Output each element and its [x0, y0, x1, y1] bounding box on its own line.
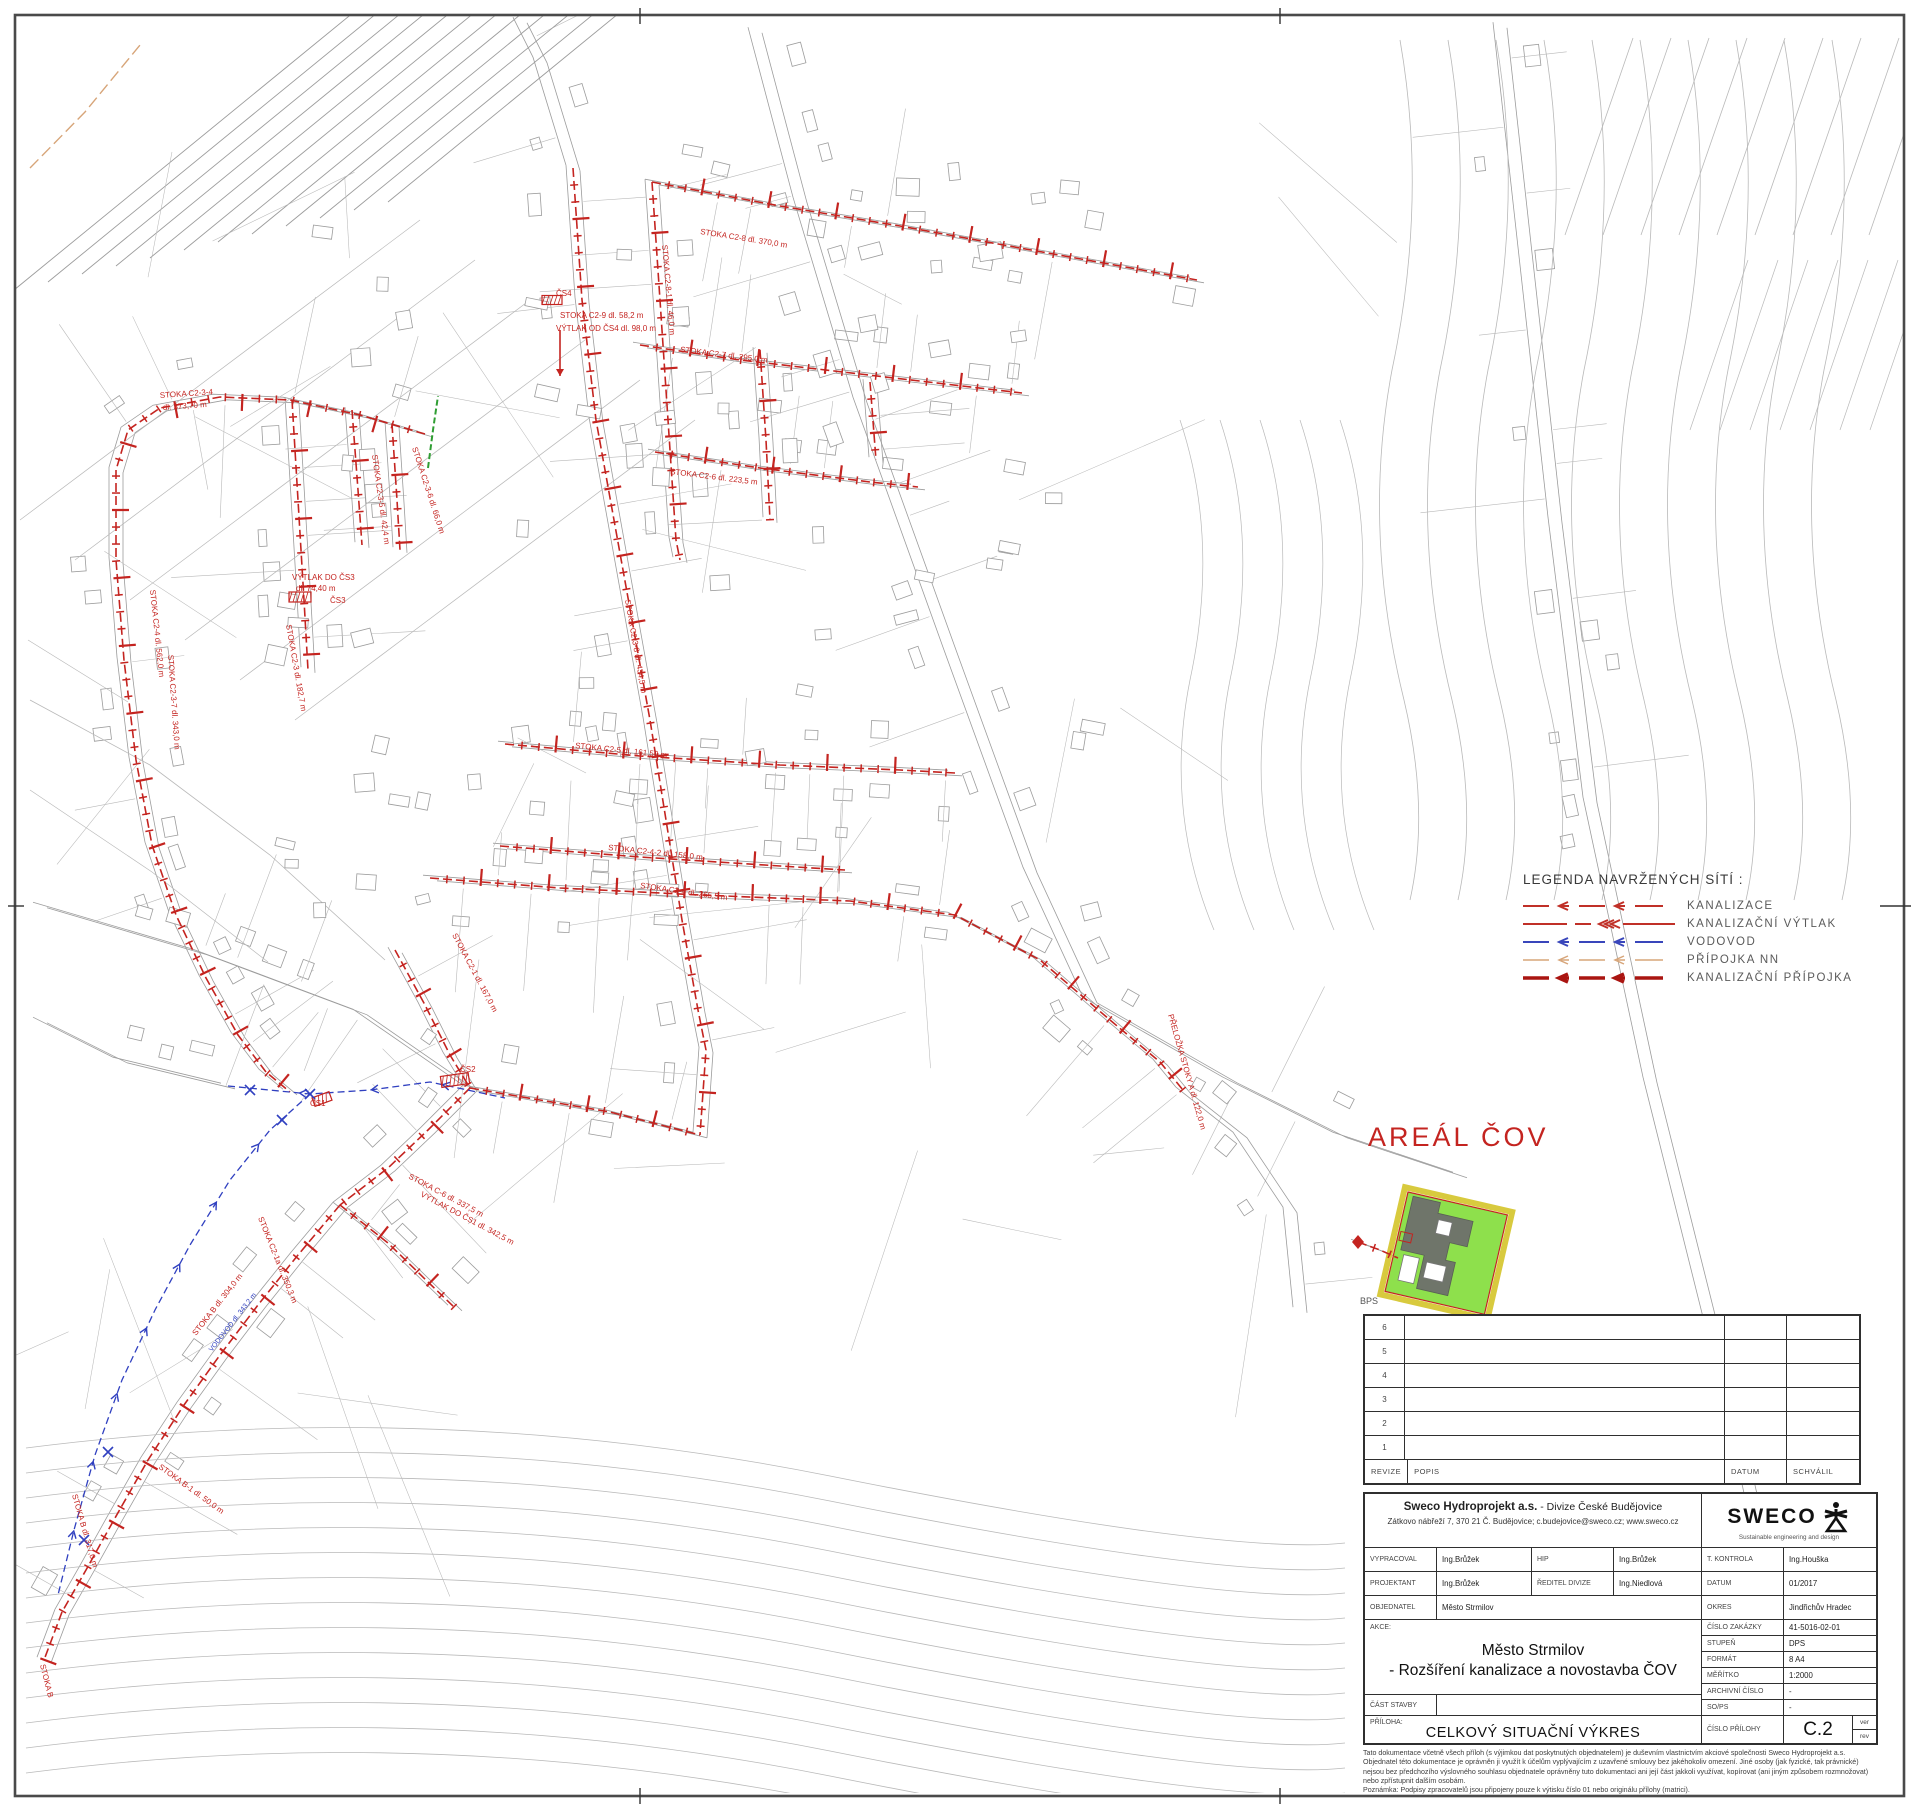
column-header: POPIS [1408, 1460, 1725, 1483]
drawing-number: C.2 [1784, 1716, 1852, 1743]
field-label: ČÍSLO PŘÍLOHY [1702, 1716, 1784, 1743]
revision-number: 2 [1365, 1412, 1405, 1435]
areal-cov-label: AREÁL ČOV [1368, 1121, 1549, 1152]
map-label: ČS2 [460, 1065, 476, 1074]
table-row: 2 [1365, 1412, 1859, 1436]
legend-item-pripojka-nn: PŘÍPOJKA NN [1523, 951, 1873, 969]
revision-number: 3 [1365, 1388, 1405, 1411]
column-header: REVIZE [1365, 1460, 1408, 1483]
drawing-title-cell: PŘÍLOHA: CELKOVÝ SITUAČNÍ VÝKRES [1365, 1716, 1701, 1743]
column-header: DATUM [1725, 1460, 1787, 1483]
map-label: STOKA C2-4 dl. 562,0 m [148, 589, 166, 678]
map-label: ČS3 [330, 596, 346, 605]
field-value: Ing.Niedlová [1614, 1572, 1701, 1595]
map-label: STOKA C2-3-7 dl. 343,0 m [166, 655, 182, 751]
disclaimer-line: Poznámka: Podpisy zpracovatelů jsou přip… [1363, 1786, 1878, 1795]
map-label: STOKA C2-9 dl. 58,2 m [560, 311, 644, 320]
kanalizacni-vytlak-line-icon [1523, 917, 1675, 931]
map-label: STOKA B dl. 317,0 m [70, 1493, 100, 1569]
legend-item-kanalizacni-pripojka: KANALIZAČNÍ PŘÍPOJKA [1523, 969, 1873, 987]
field-label: PROJEKTANT [1365, 1572, 1437, 1595]
field-label: OKRES [1702, 1596, 1784, 1619]
sweco-logo-icon [1821, 1501, 1851, 1533]
company-name: Sweco Hydroprojekt a.s. [1404, 1501, 1538, 1513]
revision-number: 5 [1365, 1340, 1405, 1363]
field-label: HIP [1532, 1548, 1614, 1571]
field-value: 01/2017 [1784, 1572, 1876, 1595]
field-label: AKCE: [1370, 1624, 1391, 1631]
legend-item-kanalizacni-vytlak: KANALIZAČNÍ VÝTLAK [1523, 915, 1873, 933]
project-title-line1: Město Strmilov [1365, 1642, 1701, 1660]
kanalizacni-pripojka-line-icon [1523, 971, 1675, 985]
field-label: ARCHIVNÍ ČÍSLO [1702, 1684, 1784, 1699]
field-label: STUPEŇ [1702, 1636, 1784, 1651]
map-label: VÝTLAK OD ČS4 dl. 98,0 m [556, 324, 656, 333]
field-value: Město Strmilov [1437, 1596, 1701, 1619]
field-label: DATUM [1702, 1572, 1784, 1595]
field-label: OBJEDNATEL [1365, 1596, 1437, 1619]
table-row: 1 [1365, 1436, 1859, 1460]
vodovod-line-icon [1523, 935, 1675, 949]
map-label: STOKA C2-4-2 dl. 158,0 m [608, 843, 704, 862]
field-value: - [1784, 1684, 1876, 1699]
table-row: 4 [1365, 1364, 1859, 1388]
field-label: ČÁST STAVBY [1365, 1695, 1437, 1715]
legend-title: LEGENDA NAVRŽENÝCH SÍTÍ : [1523, 872, 1873, 887]
company-address: Zátkovo nábřeží 7, 370 21 Č. Budějovice;… [1371, 1517, 1695, 1526]
field-label: ČÍSLO ZAKÁZKY [1702, 1620, 1784, 1635]
drawing-number-cell: ČÍSLO PŘÍLOHY C.2 ver rev [1702, 1716, 1876, 1743]
map-label: STOKA B-1 dl. 50,0 m [157, 1462, 226, 1516]
kanalizace-line-icon [1523, 899, 1675, 913]
map-label: ČS1 [310, 1099, 326, 1108]
column-header: SCHVÁLIL [1787, 1460, 1859, 1483]
field-value: - [1784, 1700, 1876, 1715]
map-label: ČS4 [556, 289, 572, 298]
project-title-line2: - Rozšíření kanalizace a novostavba ČOV [1365, 1662, 1701, 1680]
company-header: Sweco Hydroprojekt a.s. - Divize České B… [1365, 1494, 1702, 1547]
legend-item-kanalizace: KANALIZACE [1523, 897, 1873, 915]
field-label: MĚŘÍTKO [1702, 1668, 1784, 1683]
rev-label: rev [1853, 1730, 1876, 1743]
field-value: Ing.Brůžek [1614, 1548, 1701, 1571]
field-label: VYPRACOVAL [1365, 1548, 1437, 1571]
company-division: - Divize České Budějovice [1537, 1501, 1662, 1513]
disclaimer-line: Tato dokumentace včetně všech příloh (s … [1363, 1749, 1878, 1758]
title-block: Sweco Hydroprojekt a.s. - Divize České B… [1363, 1492, 1878, 1745]
legend-item-vodovod: VODOVOD [1523, 933, 1873, 951]
field-label: T. KONTROLA [1702, 1548, 1784, 1571]
field-value: 41-5016-02-01 [1784, 1620, 1876, 1635]
map-label: STOKA C2-8-1 dl. 46,0 m [660, 244, 677, 335]
revision-number: 1 [1365, 1436, 1405, 1459]
map-label: dl. 373,70 m [163, 400, 208, 412]
revision-number: 6 [1365, 1316, 1405, 1339]
field-label: SO/PS [1702, 1700, 1784, 1715]
table-row: 3 [1365, 1388, 1859, 1412]
map-label: VÝTLAK DO ČS1 dl. 342,5 m [419, 1190, 516, 1247]
field-label: PŘÍLOHA: [1370, 1719, 1403, 1726]
drawing-title: CELKOVÝ SITUAČNÍ VÝKRES [1365, 1716, 1701, 1743]
map-label: STOKA C2-1a dl. 350,3 m [256, 1215, 299, 1304]
pripojka-nn-line-icon [1523, 953, 1675, 967]
revision-table: 6 5 4 3 2 1 REVIZE POPIS DATUM SCHVÁLIL [1363, 1314, 1861, 1485]
map-label: PŘELOŽKA STOKY A dl. 122,0 m [1166, 1013, 1208, 1131]
areal-cov-siteplan [1380, 1187, 1512, 1319]
field-value: Ing.Brůžek [1437, 1548, 1532, 1571]
utility-networks [30, 45, 1398, 1664]
field-value: 1:2000 [1784, 1668, 1876, 1683]
field-label: FORMÁT [1702, 1652, 1784, 1667]
legend-item-label: KANALIZACE [1687, 900, 1774, 912]
project-title-cell: AKCE: Město Strmilov - Rozšíření kanaliz… [1365, 1620, 1701, 1695]
legend: LEGENDA NAVRŽENÝCH SÍTÍ : KANALIZACE KAN… [1523, 872, 1873, 987]
field-value: Ing.Brůžek [1437, 1572, 1532, 1595]
field-label: ŘEDITEL DIVIZE [1532, 1572, 1614, 1595]
map-label: STOKA C2-1 dl. 167,0 m [450, 932, 499, 1014]
field-value [1437, 1695, 1701, 1715]
field-value: Ing.Houška [1784, 1548, 1876, 1571]
sweco-logo-text: SWECO [1727, 1505, 1816, 1529]
map-label: STOKA B [38, 1663, 55, 1698]
table-row: 5 [1365, 1340, 1859, 1364]
disclaimer-line: Objednatel této dokumentace je oprávněn … [1363, 1758, 1878, 1767]
field-value: Jindřichův Hradec [1784, 1596, 1876, 1619]
map-label: STOKA C2-3-6 dl. 66,0 m [410, 446, 447, 535]
legend-item-label: KANALIZAČNÍ PŘÍPOJKA [1687, 972, 1852, 984]
map-label: VÝTLAK DO ČS3 [292, 573, 355, 582]
map-label: dl. 74,40 m [296, 584, 336, 593]
disclaimer-line: nebo zpřístupnit dalším osobám. [1363, 1777, 1878, 1786]
drawing-sheet: { "legend": { "title": "LEGENDA NAVRŽENÝ… [0, 0, 1920, 1813]
sweco-tagline: Sustainable engineering and design [1739, 1534, 1839, 1541]
revision-number: 4 [1365, 1364, 1405, 1387]
revision-table-header: REVIZE POPIS DATUM SCHVÁLIL [1365, 1460, 1859, 1483]
ver-label: ver [1853, 1716, 1876, 1730]
field-value: 8 A4 [1784, 1652, 1876, 1667]
map-label: STOKA C2-6 dl. 223,5 m [670, 467, 759, 487]
map-label: STOKA C2-3-8 dl. 434,5 m [623, 599, 648, 694]
legend-item-label: PŘÍPOJKA NN [1687, 954, 1780, 966]
fine-print: Tato dokumentace včetně všech příloh (s … [1363, 1749, 1878, 1796]
map-label: STOKA C2-3-4 [160, 387, 214, 400]
disclaimer-line: nejsou bez předchozího výslovného souhla… [1363, 1768, 1878, 1777]
legend-item-label: VODOVOD [1687, 936, 1756, 948]
sweco-logo: SWECO Sustainable engineering and design [1702, 1494, 1876, 1547]
table-row: 6 [1365, 1316, 1859, 1340]
legend-item-label: KANALIZAČNÍ VÝTLAK [1687, 918, 1837, 930]
bps-marker-label: BPS [1360, 1296, 1378, 1306]
field-value: DPS [1784, 1636, 1876, 1651]
